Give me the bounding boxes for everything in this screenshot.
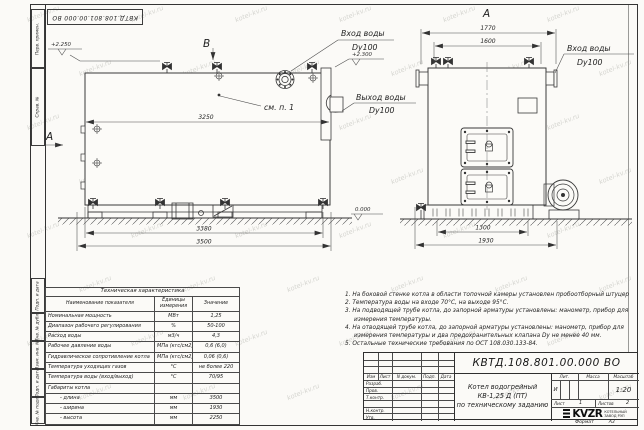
format-label: Формат [575,420,594,426]
spec-cell: мм [155,404,193,414]
spec-row: Расход водым3/ч4,3 [46,332,240,342]
dim-3380-label: 3380 [196,226,211,233]
note-line: 1. На боковой стенке котла в области топ… [345,291,637,299]
product-name-line3: по техническому заданию [457,401,549,410]
dim-1770-label: 1770 [480,25,495,32]
note-line: измерения температуры и два предохраните… [345,332,637,340]
view-b-marker: B [203,38,210,50]
logo-bars-icon [563,409,570,419]
inlet-dn-label: Dy100 [352,43,378,52]
col-list: Лист [378,373,392,379]
sheets-label: Листов [598,401,614,406]
fan [544,180,579,219]
spec-cell: % [155,321,193,331]
spec-cell: Диапазон рабочего регулирования [46,321,155,331]
product-name: Котел водогрейный КВ-1,25 Д (ПТ) по техн… [454,373,551,420]
inlet-label-front: Вход воды [567,44,611,53]
doc-number: КВТД.108.801.00.000 ВО [454,353,639,373]
dim-1600-label: 1600 [480,38,495,45]
note-line: 4. На отводящей трубе котла, до запорной… [345,324,637,332]
spec-cell: Температура уходящих газов [46,362,155,372]
spec-cell: 50-100 [193,321,240,331]
spec-col-name: Наименование показателя [46,296,155,311]
valve-icon [525,58,534,69]
spec-row: Температура уходящих газов°Сне более 220 [46,362,240,372]
spec-cell: Расход воды [46,332,155,342]
logo-text: KVZR [572,408,602,420]
sheet-value: 1 [579,400,582,406]
scale-value: 1:20 [608,380,639,399]
spec-cell: МПа (кгс/см2) [155,352,193,362]
spec-row: Габариты котла [46,383,240,393]
spec-row: Номинальная мощностьМВт1,25 [46,311,240,321]
roof-valves-left-view [163,63,317,74]
col-podp: Подп. [421,373,438,379]
inlet-dn-label-front: Dy100 [577,58,603,67]
spec-cell: 2250 [193,414,240,424]
spec-cell: 4,3 [193,332,240,342]
dim-3500-label: 3500 [196,239,211,246]
sheet-label: Лист [554,401,565,406]
spec-cell: МПа (кгс/см2) [155,342,193,352]
lit-label: Лит. [551,374,578,380]
logo-sub-line2: ЗАВОД РЭП [604,414,626,418]
spec-row: Диапазон рабочего регулирования%50-100 [46,321,240,331]
spec-row: Гидравлическое сопротивление котлаМПа (к… [46,352,240,362]
lit-value: И [551,380,560,399]
spec-cell: - ширина [46,404,155,414]
spec-table-title: Техническая характеристика [46,288,240,297]
sheets-value: 2 [626,400,629,406]
row-prov: Пров. [366,388,378,393]
valve-icon [163,63,172,74]
spec-cell: м3/ч [155,332,193,342]
col-data: Дата [438,373,454,379]
spec-cell: 1930 [193,404,240,414]
spec-row: - ширинамм1930 [46,404,240,414]
left-view [58,63,352,225]
row-razrab: Разраб. [366,381,382,386]
valve-icon [432,58,441,69]
spec-cell: Рабочее давление воды [46,342,155,352]
spec-cell: - высота [46,414,155,424]
title-block: Изм Лист N докум. Подп. Дата Разраб. Про… [363,352,638,420]
ground-hatch-left [58,219,352,225]
front-view [400,58,632,226]
note-line: 3. На подводящей трубе котла, до запорно… [345,307,637,315]
elev-2300-label: +2.300 [352,52,373,58]
inlet-label: Вход воды [341,29,385,38]
product-name-line2: КВ-1,25 Д (ПТ) [478,392,528,401]
row-utv: Утв. [366,415,375,420]
drawing-sheet: kotel-kv.rukotel-kv.rukotel-kv.rukotel-k… [0,0,644,430]
spec-cell: мм [155,414,193,424]
outlet-label: Выход воды [356,93,406,102]
view-a-marker: A [482,8,490,20]
spec-cell: °С [155,362,193,372]
spec-cell: Гидравлическое сопротивление котла [46,352,155,362]
spec-cell: °С [155,373,193,383]
valve-icon [213,63,222,74]
row-tkontr: Т.контр. [366,395,384,400]
scale-label: Масштаб [608,374,639,380]
col-ndoc: N докум. [392,373,421,379]
spec-col-value: Значение [193,296,240,311]
logo-subtext: КОТЕЛЬНЫЙ ЗАВОД РЭП [604,410,626,418]
elev-0000-label: 0.000 [355,207,371,213]
spec-cell: 70/95 [193,373,240,383]
note-line: 5. Остальные технические требования по О… [345,340,637,348]
spec-row: - высотамм2250 [46,414,240,424]
spec-cell [193,383,240,393]
mass-label: Масса [578,374,608,380]
note-line: 2. Температура воды на входе 70°С, на вы… [345,299,637,307]
row-nkontr: Н.контр. [366,408,385,413]
notes: 1. На боковой стенке котла в области топ… [345,291,637,348]
dim-1930-label: 1930 [478,238,493,245]
format-value: А3 [609,420,615,426]
outlet-dn-label: Dy100 [369,106,395,115]
spec-cell: Номинальная мощность [46,311,155,321]
spec-row: - длинамм3500 [46,393,240,403]
spec-table: Техническая характеристика Наименование … [45,287,240,425]
logo-sub-line1: КОТЕЛЬНЫЙ [604,410,626,414]
spec-cell: - длина [46,393,155,403]
spec-row: Рабочее давление водыМПа (кгс/см2)0,6 (6… [46,342,240,352]
note-line: измерения температуры. [345,316,637,324]
base-front-view [424,205,533,219]
valve-icon [444,58,453,69]
product-name-line1: Котел водогрейный [468,383,537,392]
roof-valves-front-view [432,58,534,69]
spec-cell: 1,25 [193,311,240,321]
manufacturer-logo: KVZR КОТЕЛЬНЫЙ ЗАВОД РЭП [551,407,639,421]
boiler-body-side [85,73,330,205]
spec-col-units: Единицы измерения [155,296,193,311]
format-note: Формат А3 [552,420,638,426]
col-izm: Изм [364,373,378,379]
spec-cell: Температура воды (вход/выход) [46,373,155,383]
valve-icon [308,63,317,74]
spec-cell: Габариты котла [46,383,155,393]
spec-cell: 3500 [193,393,240,403]
spec-cell: МВт [155,311,193,321]
spec-cell: не более 220 [193,362,240,372]
spec-row: Температура воды (вход/выход)°С70/95 [46,373,240,383]
outlet-assembly [321,68,343,140]
ground-hatch-front [400,220,632,226]
dim-3250-label: 3250 [198,114,213,121]
dim-1300-label: 1300 [475,225,490,232]
elev-2250-label: +2.250 [51,42,72,48]
spec-cell: мм [155,393,193,403]
spec-cell: 0,6 (6,0) [193,342,240,352]
wall-fittings [81,126,85,189]
spec-cell [155,383,193,393]
spec-cell: 0,06 (0,6) [193,352,240,362]
see-note-label: см. п. 1 [264,103,294,112]
section-a-marker: A [45,131,53,143]
